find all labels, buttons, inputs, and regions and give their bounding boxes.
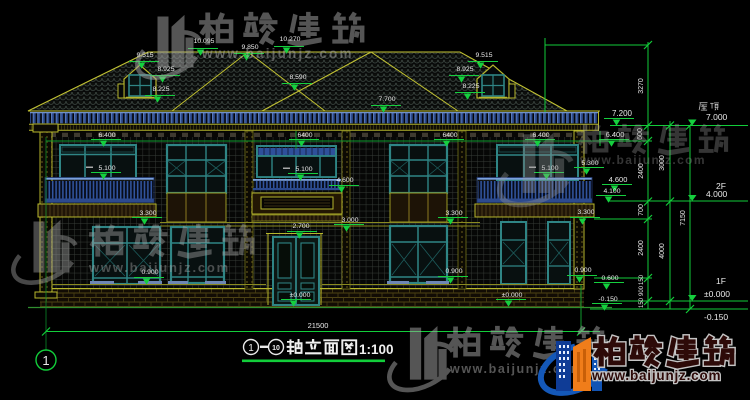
svg-text:8.925: 8.925 xyxy=(456,66,473,73)
svg-text:www.baijunjz.com: www.baijunjz.com xyxy=(591,368,721,383)
svg-text:www.baijunjz.com: www.baijunjz.com xyxy=(88,260,230,275)
svg-text:-0.150: -0.150 xyxy=(598,296,617,303)
svg-text:2.700: 2.700 xyxy=(292,223,309,230)
svg-text:6400: 6400 xyxy=(297,132,312,139)
svg-text:5.100: 5.100 xyxy=(98,165,115,172)
svg-text:0.600: 0.600 xyxy=(601,275,618,282)
svg-text:4.100: 4.100 xyxy=(603,188,620,195)
svg-text:4000: 4000 xyxy=(659,243,666,259)
svg-text:8.225: 8.225 xyxy=(152,86,169,93)
svg-text:3.300: 3.300 xyxy=(139,210,156,217)
svg-text:5.100: 5.100 xyxy=(295,166,312,173)
svg-text:7.200: 7.200 xyxy=(612,109,633,118)
svg-text:±0.000: ±0.000 xyxy=(502,292,523,299)
svg-text:±0.000: ±0.000 xyxy=(290,292,311,299)
svg-text:4.000: 4.000 xyxy=(706,189,728,199)
svg-text:8.225: 8.225 xyxy=(462,83,479,90)
svg-text:1F: 1F xyxy=(716,276,726,286)
svg-text:4.600: 4.600 xyxy=(609,175,628,184)
svg-text:3.300: 3.300 xyxy=(577,209,594,216)
svg-text:7150: 7150 xyxy=(680,210,687,226)
svg-text:1:100: 1:100 xyxy=(359,342,394,357)
svg-text:9.515: 9.515 xyxy=(475,52,492,59)
svg-text:0.900: 0.900 xyxy=(445,268,462,275)
svg-text:21500: 21500 xyxy=(308,321,329,330)
svg-text:150: 150 xyxy=(639,297,645,308)
svg-text:7.700: 7.700 xyxy=(378,96,395,103)
svg-text:700: 700 xyxy=(638,204,645,216)
svg-text:www.baijunjz.com: www.baijunjz.com xyxy=(201,46,354,61)
svg-text:10: 10 xyxy=(272,345,280,352)
svg-text:3.000: 3.000 xyxy=(341,217,358,224)
svg-text:8.590: 8.590 xyxy=(289,74,306,81)
svg-text:0.900: 0.900 xyxy=(574,267,591,274)
svg-text:3270: 3270 xyxy=(638,78,645,94)
svg-text:6400: 6400 xyxy=(442,132,457,139)
svg-text:1: 1 xyxy=(248,343,254,354)
svg-text:www.baijunjz.com: www.baijunjz.com xyxy=(579,153,706,167)
svg-text:2400: 2400 xyxy=(638,240,645,256)
svg-text:7.000: 7.000 xyxy=(706,112,728,122)
svg-text:-0.150: -0.150 xyxy=(704,312,728,322)
svg-text:1: 1 xyxy=(42,353,49,368)
svg-text:±0.000: ±0.000 xyxy=(704,289,730,299)
svg-text:6.400: 6.400 xyxy=(98,132,115,139)
svg-text:150: 150 xyxy=(639,274,645,285)
svg-text:4.600: 4.600 xyxy=(336,177,353,184)
svg-text:3.300: 3.300 xyxy=(445,210,462,217)
svg-text:900: 900 xyxy=(639,285,645,296)
